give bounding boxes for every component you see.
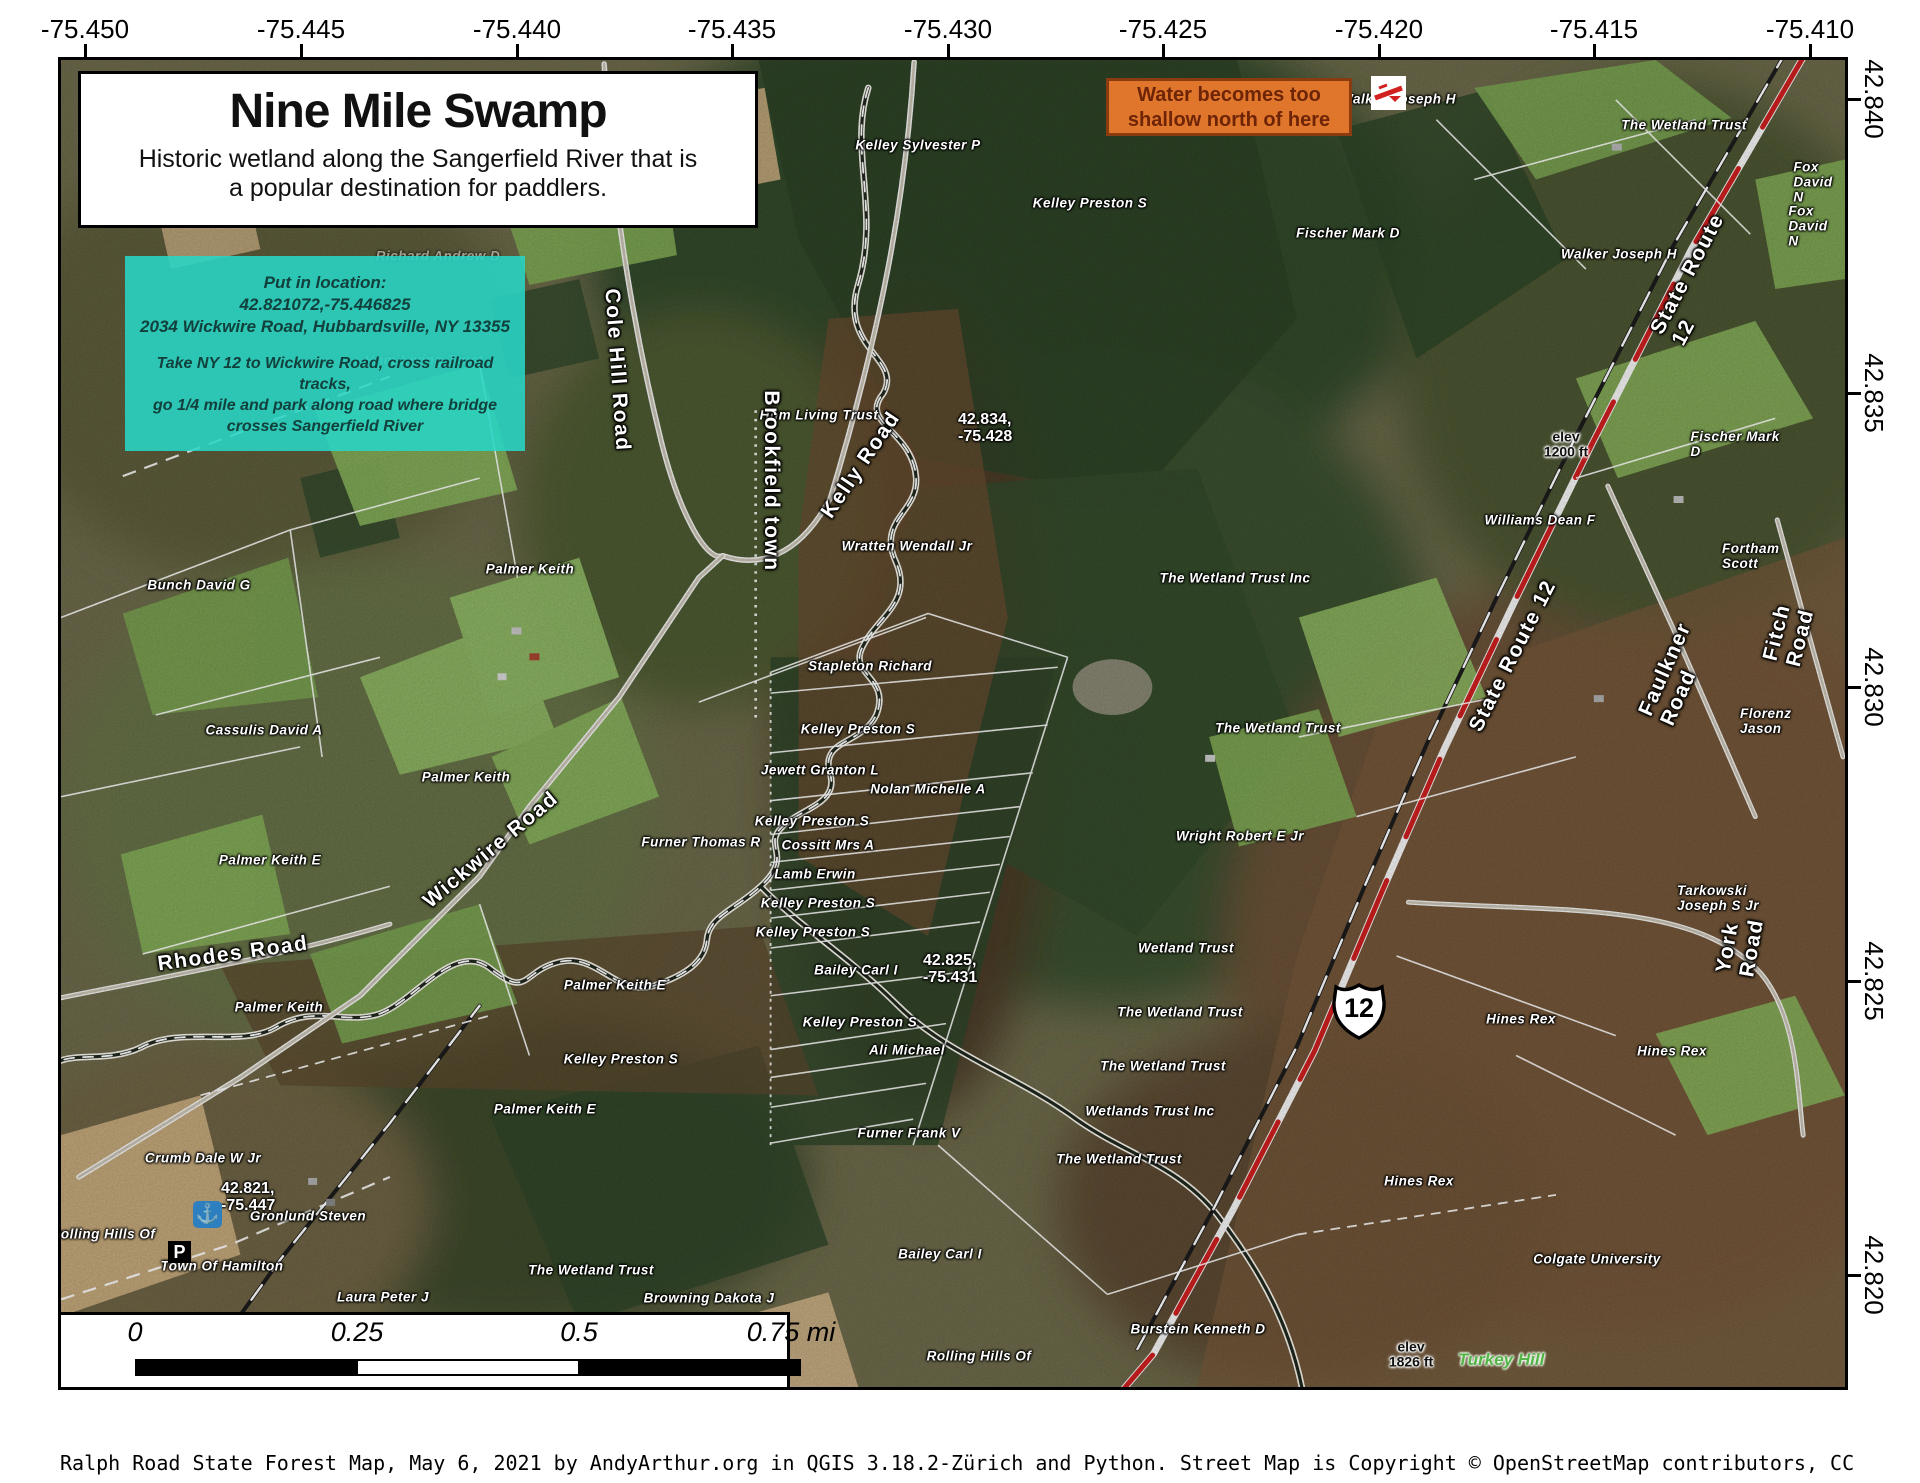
parcel-owner-label: Fox David N — [1793, 160, 1832, 205]
parcel-owner-label: Hines Rex — [1384, 1174, 1454, 1189]
route-12-shield: 12 — [1331, 980, 1387, 1040]
road-name-label: Kelly Road — [817, 407, 906, 523]
coordinate-point-label: 42.834, -75.428 — [958, 412, 1012, 446]
axis-tick — [300, 44, 303, 57]
parcel-owner-label: The Wetland Trust — [528, 1263, 654, 1278]
coordinate-point-label: 42.821, -75.447 — [221, 1181, 275, 1215]
parcel-owner-label: Wetland Trust — [1138, 941, 1234, 956]
canoe-launch-icon[interactable] — [1371, 76, 1406, 110]
parcel-owner-label: Kelley Sylvester P — [855, 138, 980, 153]
axis-tick — [1378, 44, 1381, 57]
caption-line-1: Ralph Road State Forest Map, May 6, 2021… — [60, 1450, 1880, 1476]
axis-tick — [1848, 98, 1861, 101]
parking-icon[interactable]: P — [168, 1241, 191, 1263]
longitude-tick-label: -75.420 — [1335, 14, 1423, 45]
latitude-tick-label: 42.835 — [1858, 353, 1889, 433]
parcel-owner-label: Kelley Preston S — [801, 722, 916, 737]
parcel-owner-label: Palmer Keith — [422, 770, 511, 785]
latitude-tick-label: 42.820 — [1858, 1235, 1889, 1315]
parcel-owner-label: Browning Dakota J — [644, 1291, 775, 1306]
latitude-tick-label: 42.830 — [1858, 647, 1889, 727]
scale-label: 0.25 — [331, 1317, 384, 1348]
parcel-owner-label: Bailey Carl I — [814, 963, 898, 978]
parcel-owner-label: Laura Peter J — [337, 1290, 429, 1305]
axis-tick — [1848, 1274, 1861, 1277]
road-name-label: Cole Hill Road — [599, 288, 634, 453]
parcel-owner-label: Kelley Preston S — [1033, 196, 1148, 211]
parcel-owner-label: Cassulis David A — [205, 723, 322, 738]
put-in-location-text: Put in location: 42.821072,-75.446825 20… — [133, 272, 517, 338]
put-in-directions-text: Take NY 12 to Wickwire Road, cross railr… — [133, 354, 517, 437]
parcel-owner-label: Ali Michael — [869, 1043, 945, 1058]
road-name-label: Brookfield town — [759, 390, 783, 571]
parcel-owner-label: Florenz Jason — [1740, 706, 1810, 736]
axis-tick — [516, 44, 519, 57]
parcel-owner-label: Burstein Kenneth D — [1130, 1322, 1265, 1337]
parcel-owner-label: Palmer Keith E — [494, 1102, 596, 1117]
latitude-tick-label: 42.825 — [1858, 941, 1889, 1021]
parcel-owner-label: Lamb Erwin — [774, 867, 856, 882]
longitude-tick-label: -75.440 — [473, 14, 561, 45]
parcel-owner-label: Rolling Hills Of — [58, 1227, 155, 1242]
elevation-label: elev 1826 ft — [1389, 1340, 1433, 1371]
parcel-owner-label: The Wetland Trust — [1056, 1152, 1182, 1167]
map-caption: Ralph Road State Forest Map, May 6, 2021… — [60, 1398, 1880, 1483]
parcel-owner-label: Palmer Keith — [486, 562, 575, 577]
road-name-label: Wickwire Road — [419, 787, 564, 914]
parcel-owner-label: Fox David N — [1788, 204, 1827, 249]
longitude-tick-label: -75.415 — [1550, 14, 1638, 45]
longitude-tick-label: -75.430 — [904, 14, 992, 45]
parcel-owner-label: Colgate University — [1533, 1252, 1661, 1267]
parcel-owner-label: Jewett Granton L — [761, 763, 879, 778]
axis-tick — [947, 44, 950, 57]
parcel-owner-label: Fortham Scott — [1722, 541, 1804, 571]
axis-tick — [1848, 392, 1861, 395]
axis-tick — [1848, 686, 1861, 689]
map-title: Nine Mile Swamp — [81, 84, 755, 139]
parcel-owner-label: Stapleton Richard — [808, 659, 932, 674]
parcel-owner-label: Wetlands Trust Inc — [1085, 1104, 1214, 1119]
scale-label: 0.5 — [560, 1317, 598, 1348]
parcel-owner-label: The Wetland Trust — [1215, 721, 1341, 736]
road-name-label: Rhodes Road — [156, 932, 310, 977]
axis-tick — [1593, 44, 1596, 57]
parcel-owner-label: Rolling Hills Of — [927, 1349, 1032, 1364]
parcel-owner-label: Bailey Carl I — [898, 1247, 982, 1262]
map-subtitle: Historic wetland along the Sangerfield R… — [81, 145, 755, 203]
longitude-tick-label: -75.445 — [257, 14, 345, 45]
parcel-owner-label: Wright Robert E Jr — [1176, 829, 1304, 844]
put-in-info-box: Put in location: 42.821072,-75.446825 20… — [125, 256, 525, 451]
parcel-owner-label: Cossitt Mrs A — [781, 838, 874, 853]
parcel-owner-label: Furner Thomas R — [641, 835, 760, 850]
route-number: 12 — [1331, 993, 1387, 1024]
parcel-owner-label: Williams Dean F — [1485, 513, 1596, 528]
parcel-owner-label: Kelley Preston S — [755, 814, 870, 829]
longitude-tick-label: -75.410 — [1766, 14, 1854, 45]
parcel-owner-label: Furner Frank V — [857, 1126, 960, 1141]
coordinate-point-label: 42.825, -75.431 — [923, 953, 977, 987]
anchor-icon: ⚓ — [196, 1204, 220, 1225]
parcel-owner-label: Walker Joseph H — [1561, 247, 1677, 262]
parcel-owner-label: Bunch David G — [147, 578, 250, 593]
axis-tick — [1162, 44, 1165, 57]
shallow-water-warning: Water becomes too shallow north of here — [1106, 78, 1352, 136]
road-name-label: Faulkner Road — [1634, 567, 1742, 730]
canoe-glyph — [1371, 76, 1406, 110]
parcel-owner-label: Kelley Preston S — [803, 1015, 918, 1030]
parcel-owner-label: Hines Rex — [1486, 1012, 1556, 1027]
elevation-label: elev 1200 ft — [1544, 430, 1588, 461]
parcel-owner-label: Crumb Dale W Jr — [145, 1151, 261, 1166]
longitude-tick-label: -75.435 — [688, 14, 776, 45]
parcel-owner-label: Fischer Mark D — [1296, 226, 1400, 241]
axis-tick — [1848, 980, 1861, 983]
parcel-owner-label: Wratten Wendall Jr — [842, 539, 973, 554]
scale-bar: 00.250.50.75 mi — [58, 1312, 790, 1390]
longitude-tick-label: -75.425 — [1119, 14, 1207, 45]
scale-bar-segments — [135, 1359, 801, 1376]
axis-tick — [731, 44, 734, 57]
parcel-owner-label: The Wetland Trust Inc — [1159, 571, 1310, 586]
boat-launch-anchor-icon[interactable]: ⚓ — [193, 1201, 222, 1228]
parcel-owner-label: Palmer Keith E — [219, 853, 321, 868]
parcel-owner-label: Fischer Mark D — [1691, 429, 1794, 459]
scale-label: 0.75 mi — [747, 1317, 836, 1348]
parcel-owner-label: The Wetland Trust — [1621, 118, 1747, 133]
parcel-owner-label: Nolan Michelle A — [870, 782, 986, 797]
scale-label: 0 — [127, 1317, 142, 1348]
parcel-owner-label: Kelley Preston S — [761, 896, 876, 911]
map-canvas[interactable]: Kelley Sylvester PKelley Preston SFische… — [58, 57, 1848, 1390]
parcel-owner-label: The Wetland Trust — [1117, 1005, 1243, 1020]
parcel-owner-label: Kelley Preston S — [756, 925, 871, 940]
map-page: -75.450-75.445-75.440-75.435-75.430-75.4… — [0, 0, 1920, 1483]
latitude-tick-label: 42.840 — [1858, 59, 1889, 139]
parcel-owner-label: The Wetland Trust — [1100, 1059, 1226, 1074]
road-name-label: State Route 12 — [1464, 576, 1561, 736]
parcel-owner-label: Palmer Keith E — [564, 978, 666, 993]
axis-tick — [84, 44, 87, 57]
longitude-tick-label: -75.450 — [41, 14, 129, 45]
map-title-box: Nine Mile Swamp Historic wetland along t… — [78, 71, 758, 228]
parcel-owner-label: Hines Rex — [1637, 1044, 1707, 1059]
hill-name-label: Turkey Hill — [1458, 1350, 1545, 1370]
road-name-label: State Route 12 — [1646, 200, 1756, 350]
road-name-label: Fitch Road — [1759, 601, 1820, 669]
axis-tick — [1809, 44, 1812, 57]
parcel-owner-label: Palmer Keith — [235, 1000, 324, 1015]
parcel-owner-label: Kelley Preston S — [564, 1052, 679, 1067]
